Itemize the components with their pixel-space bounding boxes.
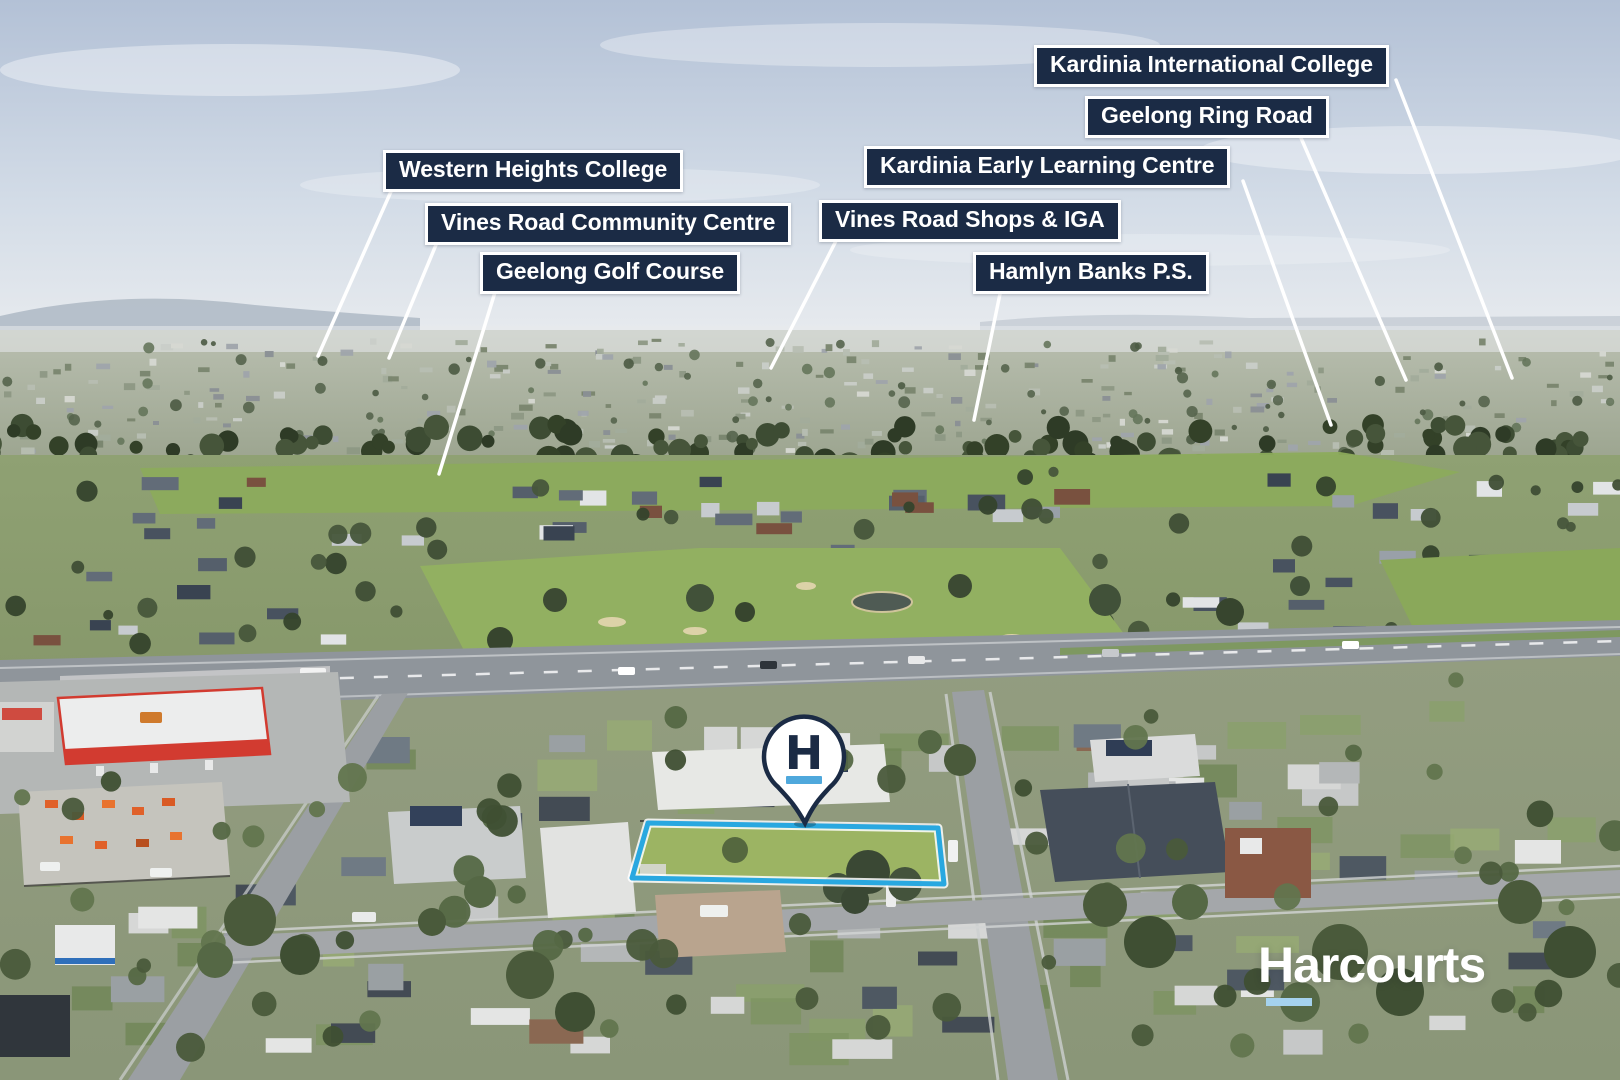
harcourts-logo: Harcourts bbox=[1258, 936, 1485, 994]
harcourts-logo-underline bbox=[1266, 998, 1312, 1006]
location-label-geelong-golf-course: Geelong Golf Course bbox=[480, 252, 740, 294]
aerial-photo-background bbox=[0, 0, 1620, 1080]
golf-pond bbox=[852, 592, 912, 612]
aerial-photo: H Kardinia International College Geelong… bbox=[0, 0, 1620, 1080]
location-label-hamlyn-banks-ps: Hamlyn Banks P.S. bbox=[973, 252, 1209, 294]
location-label-vines-road-shops-iga: Vines Road Shops & IGA bbox=[819, 200, 1121, 242]
location-label-western-heights-college: Western Heights College bbox=[383, 150, 683, 192]
location-label-geelong-ring-road: Geelong Ring Road bbox=[1085, 96, 1329, 138]
location-label-kardinia-early-learning-centre: Kardinia Early Learning Centre bbox=[864, 146, 1230, 188]
location-label-kardinia-international-college: Kardinia International College bbox=[1034, 45, 1389, 87]
location-label-vines-road-community-centre: Vines Road Community Centre bbox=[425, 203, 791, 245]
